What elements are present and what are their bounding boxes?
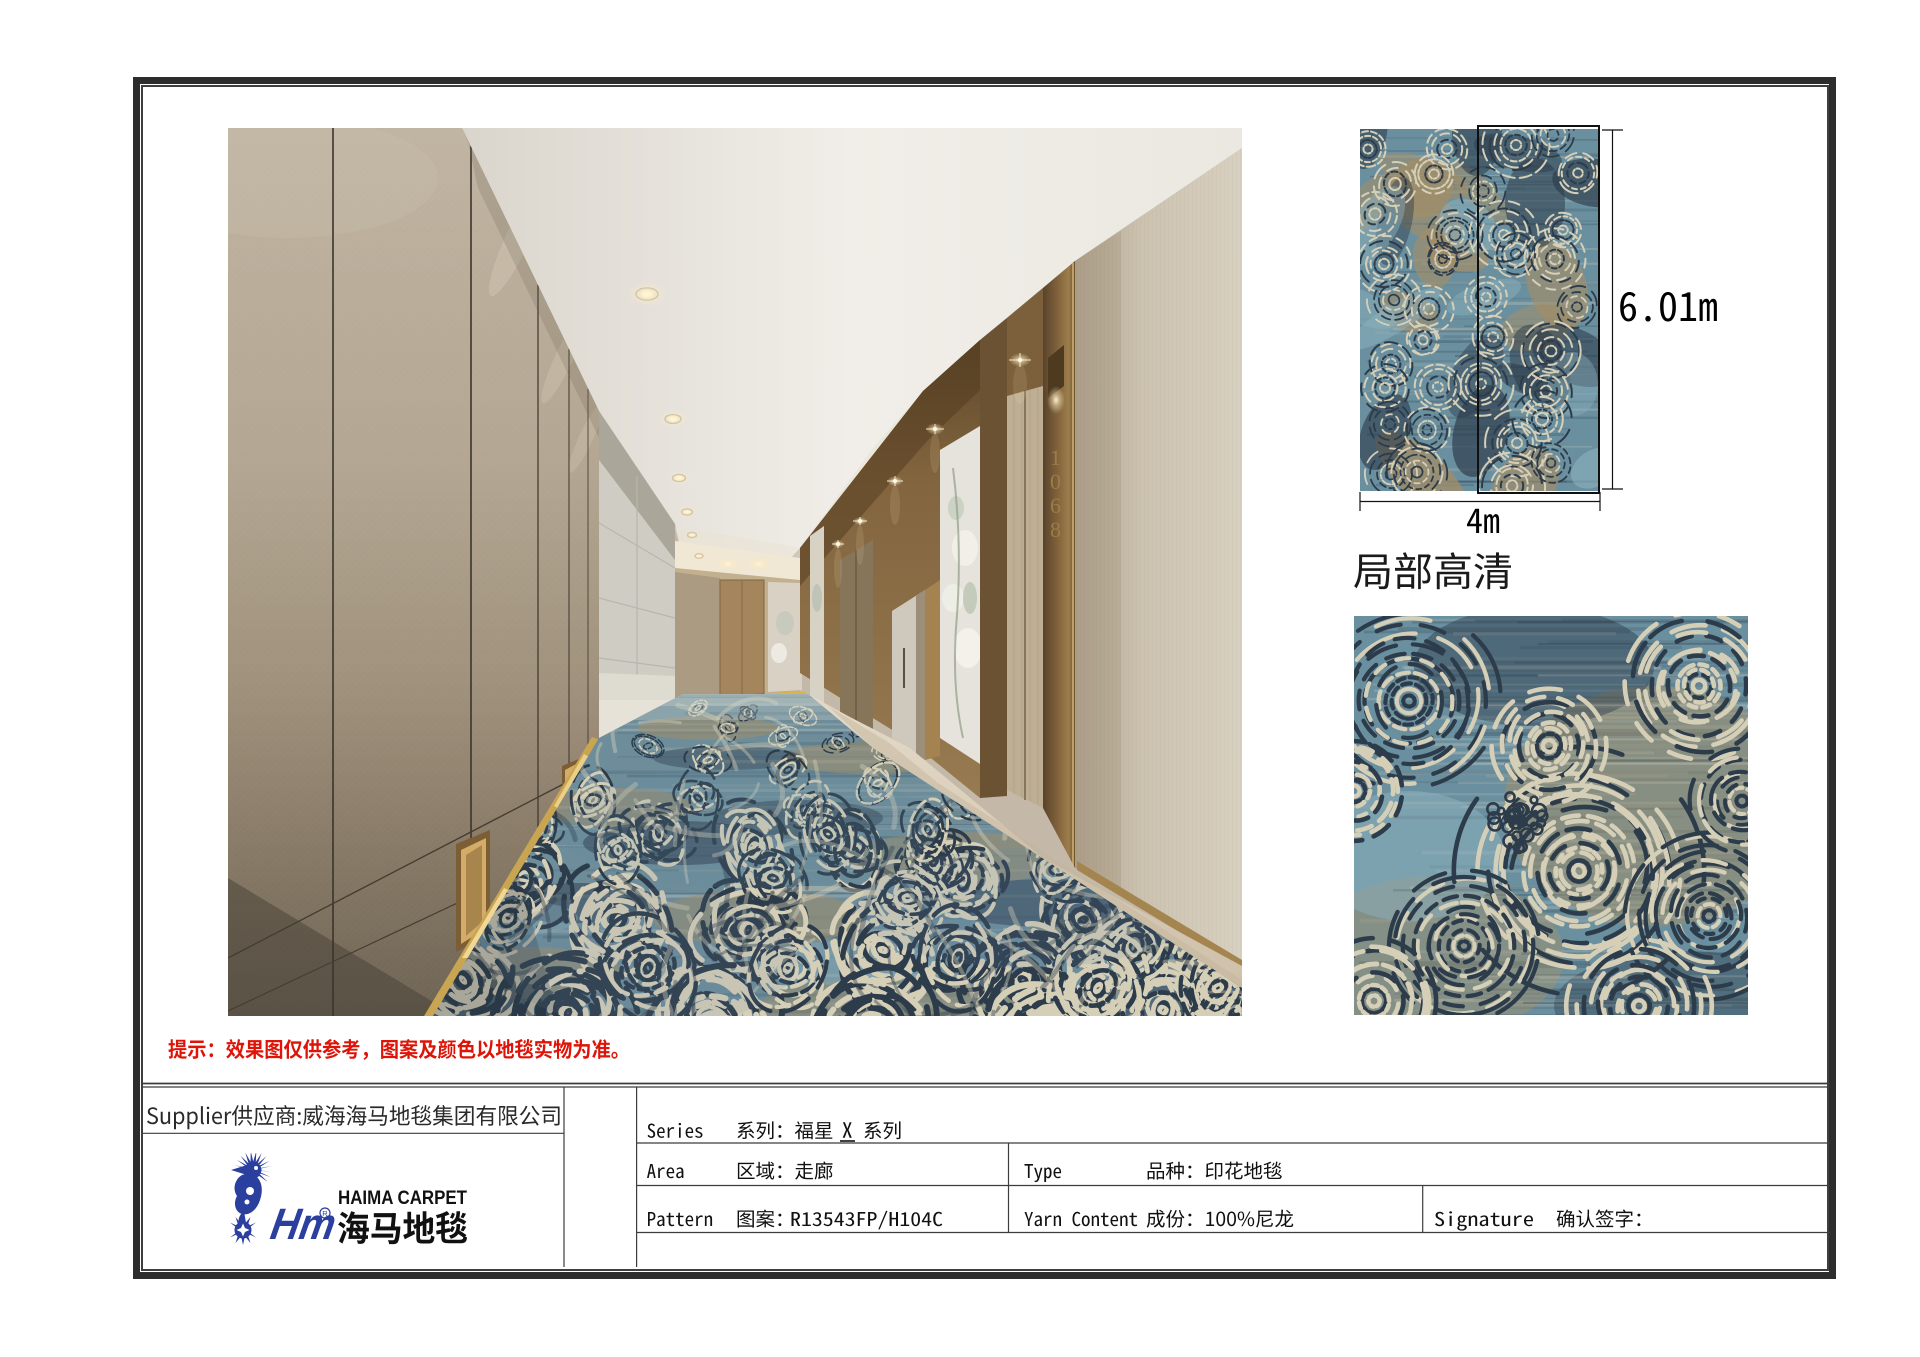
svg-text:6: 6 xyxy=(1050,493,1061,518)
svg-text:R: R xyxy=(322,1209,328,1218)
svg-text:Hm: Hm xyxy=(267,1200,340,1248)
svg-text:1: 1 xyxy=(1050,445,1061,470)
svg-text:8: 8 xyxy=(1050,517,1061,542)
svg-text:0: 0 xyxy=(1050,469,1061,494)
